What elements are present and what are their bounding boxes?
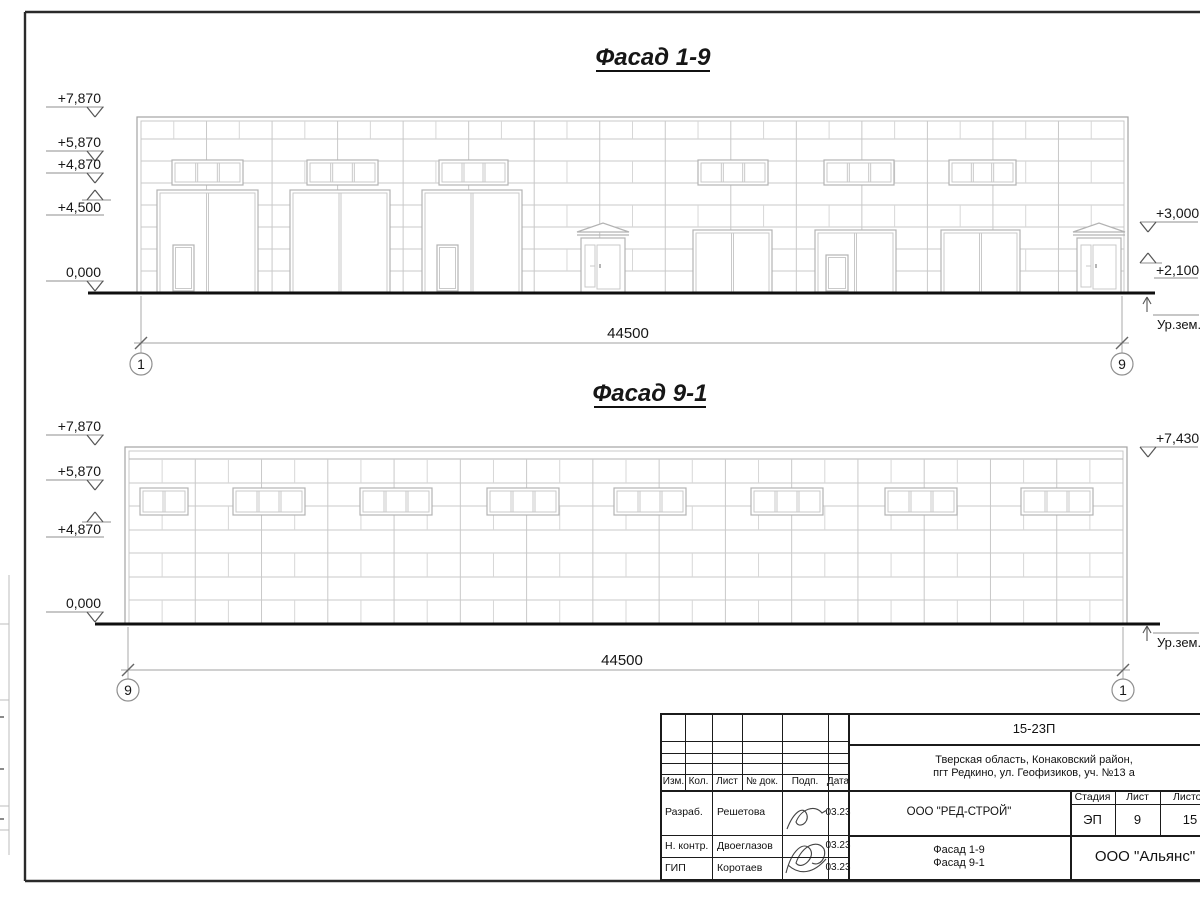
elevation-arrow: [95, 173, 103, 183]
titleblock-horizontal: [660, 753, 848, 754]
elevation-arrow: [95, 480, 103, 490]
sheets-header: Листов: [1160, 790, 1200, 804]
elevation-arrow: [1148, 447, 1156, 457]
name-reshetova: Решетова: [714, 790, 780, 835]
axis-number: 1: [1119, 682, 1127, 698]
window: [824, 160, 894, 185]
axis-number: 1: [137, 356, 145, 372]
window: [439, 160, 508, 185]
entrance-door: [1077, 238, 1121, 293]
titleblock-horizontal: [1070, 804, 1200, 805]
margin-strip-text-fragment: [0, 818, 4, 820]
margin-strip-text-fragment: [0, 716, 4, 718]
stage-value: ЭП: [1070, 804, 1115, 835]
ground-level-arrow: [1147, 626, 1151, 633]
titleblock-horizontal: [848, 744, 1200, 746]
org-name: ООО "Альянс": [1070, 835, 1200, 879]
elevation-arrow: [95, 612, 103, 622]
titleblock-horizontal: [660, 857, 848, 858]
titleblock-horizontal: [660, 763, 848, 764]
title-block: 15-23П Тверская область, Конаковский рай…: [660, 713, 1200, 881]
window: [307, 160, 378, 185]
ground-level-label: Ур.зем.: [1157, 317, 1200, 332]
titleblock-vertical: [1160, 790, 1161, 835]
elevation-label: 0,000: [66, 264, 101, 280]
elevation-label: +3,000: [1156, 205, 1199, 221]
signature-razrab: [787, 808, 827, 829]
elevation-label: +4,870: [58, 521, 101, 537]
elevation-label: +2,100: [1156, 262, 1199, 278]
ground-level-arrow: [1143, 626, 1147, 633]
elevation-arrow: [1148, 253, 1156, 263]
col-header-list: Лист: [712, 774, 742, 790]
sheet-title: Фасад 1-9 Фасад 9-1: [848, 835, 1070, 879]
col-header-data: Дата: [828, 774, 848, 790]
elevation-arrow: [87, 435, 95, 445]
window: [751, 488, 823, 515]
window: [949, 160, 1016, 185]
ground-level-label: Ур.зем.: [1157, 635, 1200, 650]
elevation-label: 0,000: [66, 595, 101, 611]
titleblock-horizontal: [660, 835, 848, 836]
titleblock-vertical: [848, 713, 850, 881]
window: [1021, 488, 1093, 515]
titleblock-vertical: [660, 713, 662, 881]
address-line-1: Тверская область, Конаковский район,: [935, 754, 1133, 767]
elevation-label: +4,500: [58, 199, 101, 215]
facade-title: Фасад 9-1: [593, 380, 708, 407]
titleblock-address: Тверская область, Конаковский район, пгт…: [848, 744, 1200, 790]
axis-number: 9: [124, 682, 132, 698]
elevation-label: +5,870: [58, 134, 101, 150]
axis-number: 9: [1118, 356, 1126, 372]
titleblock-horizontal: [848, 835, 1200, 837]
gate: [290, 190, 390, 292]
elevation-arrow: [1140, 447, 1148, 457]
sheet-value: 9: [1115, 804, 1160, 835]
elevation-arrow: [87, 107, 95, 117]
elevation-arrow: [95, 435, 103, 445]
date-row1: 03.23: [828, 790, 848, 835]
titleblock-vertical: [742, 713, 743, 790]
elevation-label: +7,430: [1156, 430, 1199, 446]
entrance-door-handle: [599, 264, 601, 268]
elevation-arrow: [95, 107, 103, 117]
elevation-label: +5,870: [58, 463, 101, 479]
role-razrab: Разраб.: [662, 790, 712, 835]
col-header-doc: № док.: [742, 774, 782, 790]
window: [614, 488, 686, 515]
elevation-arrow: [87, 480, 95, 490]
sheet-title-line-1: Фасад 1-9: [933, 844, 984, 857]
titleblock-vertical: [782, 713, 783, 879]
titleblock-horizontal: [660, 879, 1200, 881]
name-korotaev: Коротаев: [714, 857, 780, 879]
role-gip: ГИП: [662, 857, 712, 879]
titleblock-vertical: [685, 713, 686, 790]
elevation-arrow: [95, 281, 103, 291]
drawing-sheet: Фасад 1-9+7,870+5,870+4,870+4,5000,000+3…: [0, 0, 1200, 900]
personnel-door: [437, 245, 458, 291]
facade-title: Фасад 1-9: [596, 44, 712, 71]
window: [140, 488, 188, 515]
titleblock-vertical: [712, 713, 713, 879]
ground-level-arrow: [1143, 297, 1147, 304]
elevation-arrow: [87, 173, 95, 183]
col-header-izm: Изм.: [662, 774, 685, 790]
personnel-door: [826, 255, 848, 291]
titleblock-horizontal: [660, 741, 848, 742]
date-row2: 03.23: [828, 835, 848, 857]
gate: [157, 190, 258, 292]
titleblock-horizontal: [660, 774, 848, 775]
window: [487, 488, 559, 515]
date-row3: 03.23: [828, 857, 848, 879]
margin-strip-text-fragment: [0, 768, 4, 770]
dimension-value: 44500: [607, 325, 649, 342]
entrance-door-handle: [1095, 264, 1097, 268]
elevation-arrow: [87, 281, 95, 291]
col-header-podp: Подп.: [782, 774, 828, 790]
col-header-kol: Кол.: [685, 774, 712, 790]
window: [172, 160, 243, 185]
titleblock-vertical: [1115, 790, 1116, 835]
personnel-door: [173, 245, 194, 291]
stage-header: Стадия: [1070, 790, 1115, 804]
window: [360, 488, 432, 515]
elevation-label: +4,870: [58, 156, 101, 172]
titleblock-doc-number: 15-23П: [848, 713, 1200, 744]
ground-level-arrow: [1147, 297, 1151, 304]
window: [885, 488, 957, 515]
titleblock-vertical: [828, 713, 829, 879]
name-dvoeglazov: Двоеглазов: [714, 835, 780, 857]
elevation-arrow: [1140, 253, 1148, 263]
dimension-value: 44500: [601, 652, 643, 669]
elevation-label: +7,870: [58, 418, 101, 434]
elevation-arrow: [87, 612, 95, 622]
gate: [941, 230, 1020, 292]
signature-nkontr-gip: [786, 844, 826, 873]
sheets-value: 15: [1160, 804, 1200, 835]
window: [698, 160, 768, 185]
elevation-label: +7,870: [58, 90, 101, 106]
titleblock-horizontal: [660, 713, 1200, 715]
gate: [693, 230, 772, 292]
entrance-door: [581, 238, 625, 293]
sheet-title-line-2: Фасад 9-1: [933, 857, 984, 870]
window: [233, 488, 305, 515]
role-nkontr: Н. контр.: [662, 835, 712, 857]
sheet-header: Лист: [1115, 790, 1160, 804]
elevation-arrow: [1140, 222, 1148, 232]
company-name: ООО "РЕД-СТРОЙ": [848, 790, 1070, 835]
address-line-2: пгт Редкино, ул. Геофизиков, уч. №13 а: [933, 767, 1135, 780]
elevation-arrow: [1148, 222, 1156, 232]
titleblock-horizontal: [660, 790, 1200, 792]
